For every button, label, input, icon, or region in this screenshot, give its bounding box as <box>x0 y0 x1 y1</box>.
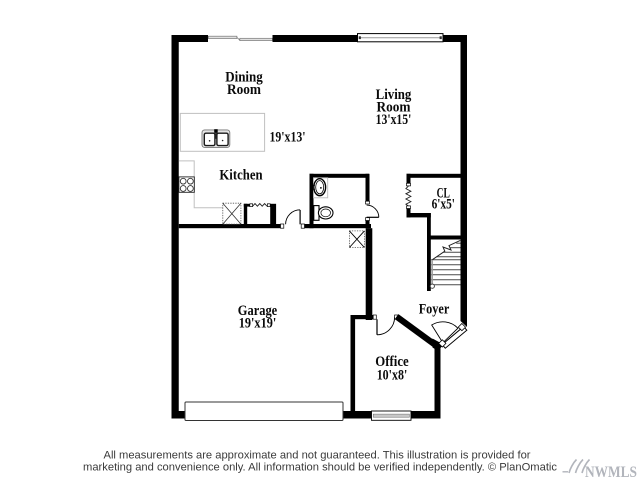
svg-text:All measurements are approxima: All measurements are approximate and not… <box>104 450 531 462</box>
svg-text:NWMLS: NWMLS <box>585 464 637 480</box>
svg-text:19'x19': 19'x19' <box>239 316 277 332</box>
svg-text:Room: Room <box>227 82 261 98</box>
svg-text:19'x13': 19'x13' <box>269 130 305 146</box>
svg-text:10'x8': 10'x8' <box>377 368 408 384</box>
svg-text:13'x15': 13'x15' <box>376 112 412 128</box>
svg-text:Foyer: Foyer <box>419 302 450 318</box>
svg-text:Kitchen: Kitchen <box>219 168 263 184</box>
svg-text:6'x5': 6'x5' <box>432 197 455 213</box>
svg-text:marketing and convenience only: marketing and convenience only. All info… <box>83 462 558 474</box>
